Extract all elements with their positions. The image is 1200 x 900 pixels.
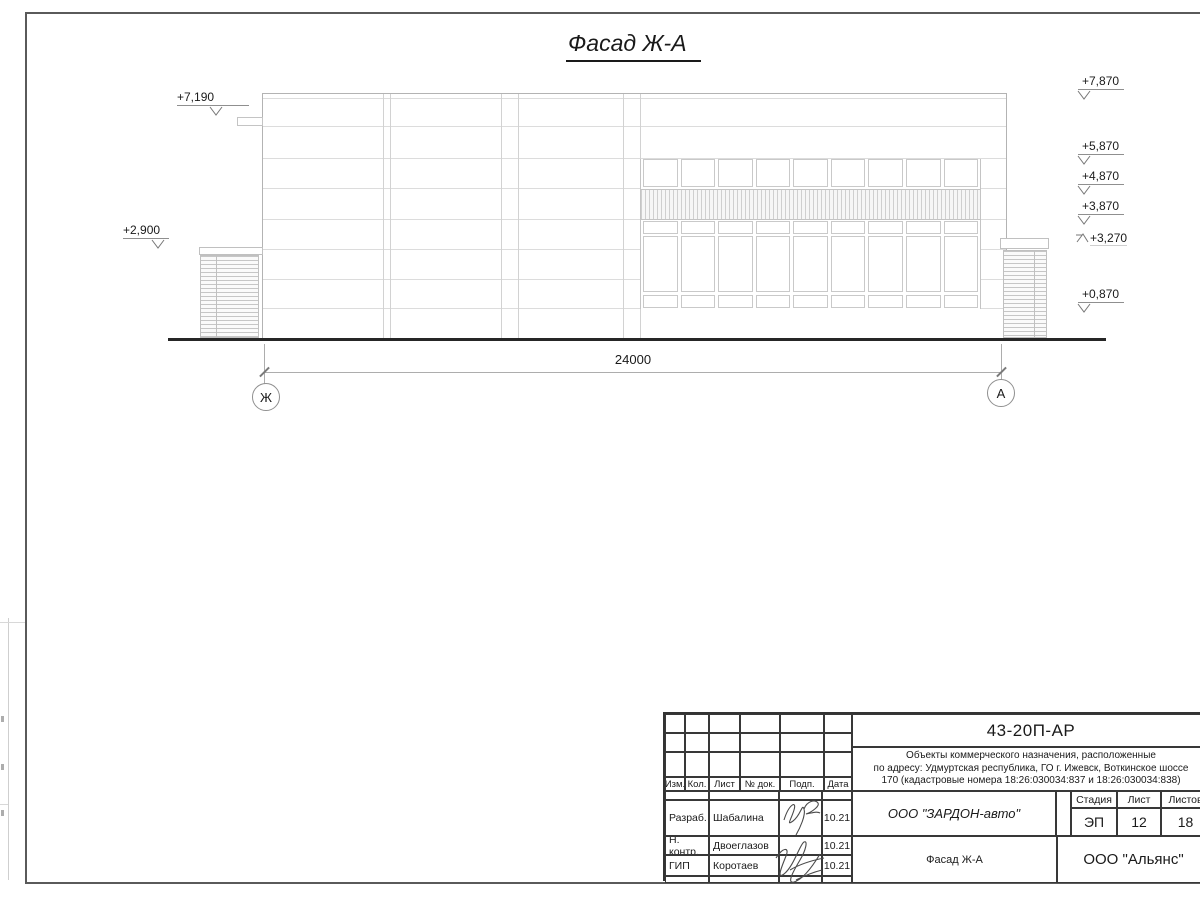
window-pane (831, 295, 866, 308)
window-pane (831, 221, 866, 234)
pilaster-strip (501, 94, 519, 339)
level-tick-icon (1077, 185, 1091, 195)
tb-cell (824, 752, 852, 777)
elevation-value: +3,270 (1090, 231, 1127, 246)
window-pane (718, 159, 753, 187)
window-pane (756, 236, 791, 292)
tb-cell (685, 733, 709, 752)
tb-cell (665, 876, 709, 883)
axis-bubble-right: А (987, 379, 1015, 407)
elevation-mark: +7,870 (1078, 74, 1124, 90)
window-row-transom (643, 221, 978, 234)
level-tick-icon (1077, 215, 1091, 225)
drawing-title: Фасад Ж-А (566, 30, 701, 62)
window-pane (868, 295, 903, 308)
facade-building (262, 93, 1007, 340)
window-row-upper (643, 159, 978, 187)
elevation-mark: +2,900 (123, 223, 169, 239)
tb-project-line: по адресу: Удмуртская республика, ГО г. … (874, 763, 1189, 776)
tb-col-header: Дата (824, 777, 852, 791)
tb-name: Двоеглазов (709, 836, 779, 855)
tb-cell (685, 752, 709, 777)
elevation-mark: +3,270 (1075, 231, 1127, 246)
window-pane (756, 221, 791, 234)
window-pane (906, 236, 941, 292)
window-pane (681, 236, 716, 292)
window-pane (681, 221, 716, 234)
tb-sheet-value: 12 (1117, 808, 1161, 836)
window-row-lower (643, 295, 978, 308)
level-tick-icon (1077, 303, 1091, 313)
elevation-mark: +3,870 (1078, 199, 1124, 215)
tb-col-header: Подп. (780, 777, 824, 791)
tb-role: Разраб. (665, 800, 709, 836)
elevation-value: +2,900 (123, 223, 169, 239)
axis-label: Ж (260, 390, 272, 405)
elevation-value: +4,870 (1078, 169, 1124, 185)
window-pane (868, 236, 903, 292)
elevation-value: +5,870 (1078, 139, 1124, 155)
window-pane (718, 295, 753, 308)
title-block: Изм. Кол. Лист № док. Подп. Дата Разраб.… (663, 712, 1200, 881)
window-pane (643, 236, 678, 292)
louver-cap-left (199, 247, 263, 255)
side-stamp-mark (1, 810, 4, 816)
extension-line (264, 344, 265, 384)
window-pane (868, 159, 903, 187)
tb-project-line: Объекты коммерческого назначения, распол… (906, 750, 1156, 763)
tb-col-header: № док. (740, 777, 780, 791)
tb-cell (740, 733, 780, 752)
tb-cell (822, 791, 852, 800)
tb-cell (709, 791, 779, 800)
extension-line (1001, 344, 1002, 384)
tb-cell (665, 791, 709, 800)
tb-cell (824, 733, 852, 752)
tb-cell (709, 752, 740, 777)
level-tick-icon (1077, 90, 1091, 100)
tb-cell (665, 733, 685, 752)
window-pane (944, 221, 979, 234)
side-stamp-line (0, 804, 8, 805)
tb-cell (709, 714, 740, 733)
level-tick-icon (1075, 232, 1090, 243)
window-pane (906, 221, 941, 234)
dimension-value: 24000 (597, 352, 669, 367)
elevation-mark: +0,870 (1078, 287, 1124, 303)
window-pane (681, 159, 716, 187)
tb-doc-number: 43-20П-АР (852, 714, 1200, 747)
tb-cell (665, 714, 685, 733)
tb-name: Коротаев (709, 855, 779, 876)
tb-stage-header: Стадия (1071, 791, 1117, 808)
side-stamp-line (0, 622, 25, 623)
tb-project-description: Объекты коммерческого назначения, распол… (852, 747, 1200, 791)
tb-sheet-header: Лист (1117, 791, 1161, 808)
tb-cell (780, 714, 824, 733)
window-pane (906, 159, 941, 187)
drawing-sheet: { "sheet": { "title": "Фасад Ж-А " }, "e… (0, 0, 1200, 900)
side-stamp-mark (1, 764, 4, 770)
dimension-line (264, 372, 1001, 373)
window-pane (793, 221, 828, 234)
curtain-wall (640, 159, 981, 309)
tb-project-line: 170 (кадастровые номера 18:26:030034:837… (881, 775, 1180, 788)
window-row-main (643, 236, 978, 292)
louver-stack-left (200, 255, 259, 338)
elevation-mark: +5,870 (1078, 139, 1124, 155)
window-pane (944, 236, 979, 292)
level-tick-icon (151, 239, 165, 249)
elevation-value: +3,870 (1078, 199, 1124, 215)
tb-stage-value: ЭП (1071, 808, 1117, 836)
elevation-value: +7,190 (177, 90, 249, 106)
window-pane (793, 159, 828, 187)
tb-cell (780, 752, 824, 777)
window-pane (944, 159, 979, 187)
window-pane (831, 159, 866, 187)
tb-cell (824, 714, 852, 733)
tb-cell (709, 733, 740, 752)
slat-band (641, 189, 980, 220)
tb-cell (780, 733, 824, 752)
louver-divider (1034, 251, 1035, 337)
tb-client: ООО "ЗАРДОН-авто" (852, 791, 1056, 836)
tb-cell (740, 752, 780, 777)
elevation-value: +7,870 (1078, 74, 1124, 90)
window-pane (643, 159, 678, 187)
window-pane (906, 295, 941, 308)
signature (770, 836, 828, 888)
ground-line (168, 338, 1106, 341)
signature (779, 794, 823, 838)
axis-label: А (997, 386, 1006, 401)
tb-organization: ООО "Альянс" (1057, 836, 1200, 883)
window-pane (756, 295, 791, 308)
tb-cell (665, 752, 685, 777)
tb-name: Шабалина (709, 800, 779, 836)
tb-col-header: Лист (709, 777, 740, 791)
tb-date: 10.21 (822, 800, 852, 836)
window-pane (793, 295, 828, 308)
louver-stack-right (1003, 250, 1047, 338)
window-pane (756, 159, 791, 187)
elevation-mark: +7,190 (177, 90, 249, 106)
window-pane (718, 221, 753, 234)
tb-sheets-value: 18 (1161, 808, 1200, 836)
tb-sheets-header: Листов (1161, 791, 1200, 808)
elevation-mark: +4,870 (1078, 169, 1124, 185)
louver-divider (216, 256, 217, 337)
parapet-ledge (237, 117, 263, 126)
window-pane (831, 236, 866, 292)
tb-role: ГИП (665, 855, 709, 876)
level-tick-icon (209, 106, 223, 116)
window-pane (868, 221, 903, 234)
window-pane (643, 295, 678, 308)
tb-cell (685, 714, 709, 733)
louver-cap-right (1000, 238, 1049, 249)
window-pane (718, 236, 753, 292)
window-pane (681, 295, 716, 308)
elevation-value: +0,870 (1078, 287, 1124, 303)
window-pane (643, 221, 678, 234)
axis-bubble-left: Ж (252, 383, 280, 411)
tb-role: Н. контр. (665, 836, 709, 855)
side-stamp-mark (1, 716, 4, 722)
window-pane (793, 236, 828, 292)
tb-cell (709, 876, 779, 883)
window-pane (944, 295, 979, 308)
tb-col-header: Изм. (665, 777, 685, 791)
tb-cell (1056, 791, 1071, 836)
pilaster-strip (623, 94, 641, 339)
tb-col-header: Кол. (685, 777, 709, 791)
pilaster-strip (383, 94, 391, 339)
tb-drawing-name: Фасад Ж-А (852, 836, 1057, 883)
side-stamp-line (8, 618, 9, 880)
tb-cell (740, 714, 780, 733)
level-tick-icon (1077, 155, 1091, 165)
